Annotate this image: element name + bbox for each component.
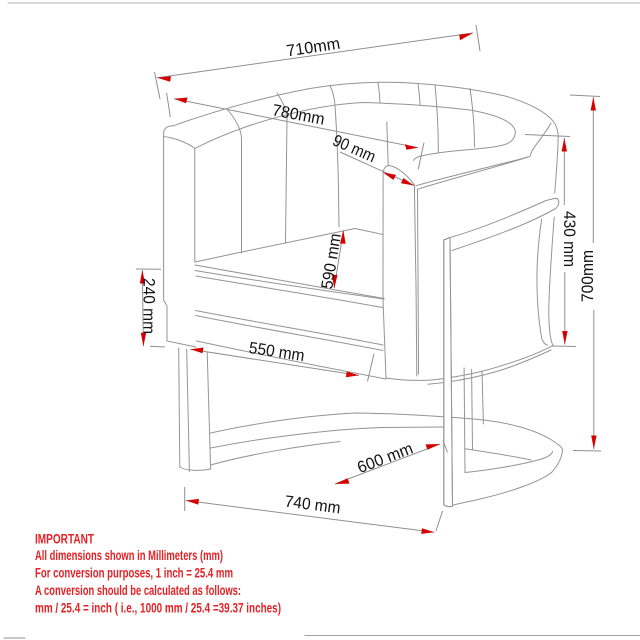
svg-text:mm / 25.4 = inch ( i.e., 1000: mm / 25.4 = inch ( i.e., 1000 mm / 25.4 … [35, 601, 281, 616]
svg-text:All dimensions shown in Millim: All dimensions shown in Millimeters (mm) [35, 548, 223, 563]
svg-text:IMPORTANT: IMPORTANT [35, 532, 95, 547]
svg-text:780mm: 780mm [271, 101, 326, 128]
svg-text:For conversion purposes, 1 inc: For conversion purposes, 1 inch = 25.4 m… [35, 566, 233, 581]
svg-text:700mm: 700mm [579, 250, 597, 302]
svg-text:90 mm: 90 mm [330, 132, 378, 167]
svg-text:600 mm: 600 mm [355, 440, 416, 478]
svg-text:710mm: 710mm [285, 35, 341, 61]
svg-text:430 mm: 430 mm [560, 211, 578, 267]
svg-text:A conversion should be calcula: A conversion should be calculated as fol… [35, 583, 241, 598]
svg-text:550 mm: 550 mm [248, 339, 306, 365]
svg-text:240 mm: 240 mm [140, 278, 158, 334]
svg-text:590 mm: 590 mm [318, 232, 345, 290]
